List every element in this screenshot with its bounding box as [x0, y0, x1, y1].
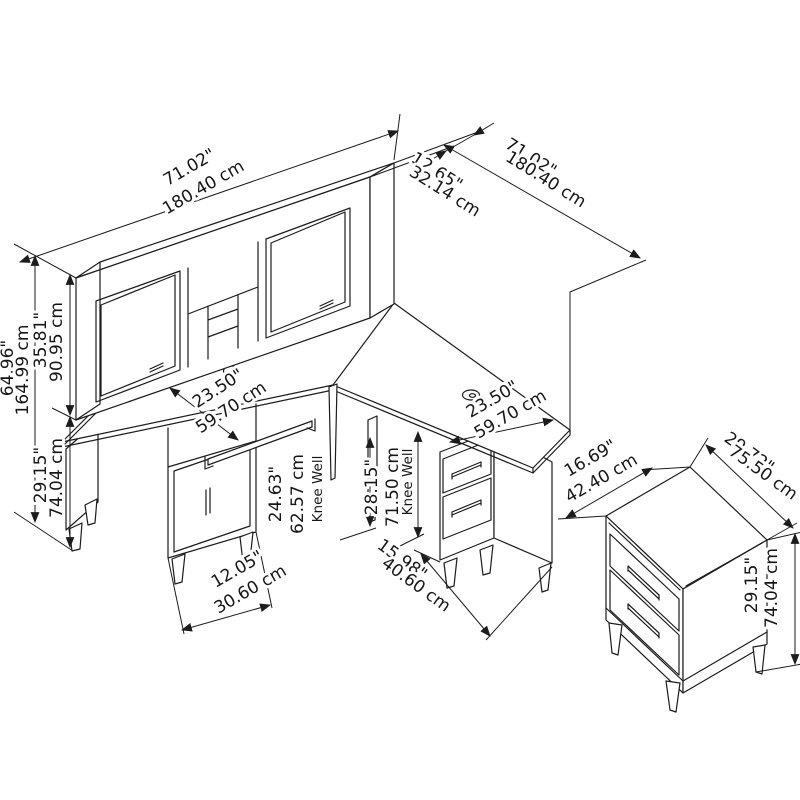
label-left-knee-well-note: Knee Well	[310, 456, 326, 523]
furniture-dimension-diagram: 71.02" 180.40 cm 12.65" 32.14 cm 71.02" …	[0, 0, 800, 800]
label-cabinet-height-in: 29.15"	[742, 557, 762, 614]
tick-right-knee-floor	[400, 534, 424, 546]
label-overall-height-cm: 164.99 cm	[13, 325, 33, 416]
label-right-knee-well-in: 28.15"	[362, 459, 382, 516]
label-desk-height-cm: 74.04 cm	[47, 438, 67, 518]
label-cabinet-height-cm: 74.04 cm	[762, 548, 782, 628]
hutch-right-end	[370, 163, 394, 318]
ext-line-return-corner	[570, 260, 646, 430]
dimarrow-hutch-depth-b	[474, 123, 494, 135]
corner-leg	[329, 384, 337, 480]
diagram-canvas: 71.02" 180.40 cm 12.65" 32.14 cm 71.02" …	[0, 0, 800, 800]
label-left-knee-well-in: 24.63"	[266, 466, 286, 523]
label-right-knee-well-note: Knee Well	[400, 449, 416, 516]
tick-left-knee-floor	[340, 528, 376, 540]
label-left-knee-well-cm: 62.57 cm	[288, 454, 308, 534]
label-hutch-height-cm: 90.95 cm	[47, 302, 67, 382]
ext-line-desktop-left	[52, 408, 76, 420]
